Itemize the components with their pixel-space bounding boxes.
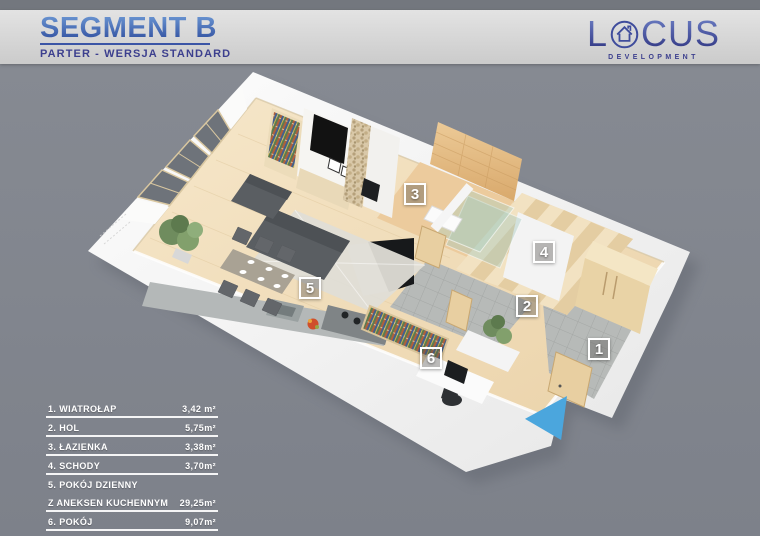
logo-subtext: DEVELOPMENT [587, 54, 720, 61]
room-marker-5: 5 [299, 277, 321, 299]
legend-row: 5. POKÓJ DZIENNY [46, 480, 218, 494]
room-marker-1: 1 [588, 338, 610, 360]
legend-row: Z ANEKSEN KUCHENNYM29,25m² [46, 498, 218, 512]
legend-row: 2. HOL5,75m² [46, 423, 218, 437]
legend-area-value: 29,25m² [180, 498, 216, 508]
legend-room-label: 2. HOL [48, 423, 79, 433]
room-marker-2: 2 [516, 295, 538, 317]
title-block: SEGMENT B PARTER - WERSJA STANDARD [40, 13, 231, 60]
logo-wordmark: L CUS [587, 16, 720, 52]
logo-letter-l: L [587, 16, 608, 52]
house-in-circle-icon [609, 19, 640, 50]
logo-letters-cus: CUS [641, 16, 720, 52]
room-marker-4: 4 [533, 241, 555, 263]
legend-room-label: 4. SCHODY [48, 461, 100, 471]
page-subtitle: PARTER - WERSJA STANDARD [40, 48, 231, 60]
legend-row: 4. SCHODY3,70m² [46, 461, 218, 475]
legend-row: 1. WIATROŁAP3,42 m² [46, 404, 218, 418]
legend-room-label: 5. POKÓJ DZIENNY [48, 480, 138, 490]
legend-room-label: 6. POKÓJ [48, 517, 93, 527]
room-marker-3: 3 [404, 183, 426, 205]
legend-row: 6. POKÓJ9,07m² [46, 517, 218, 531]
legend-room-label: Z ANEKSEN KUCHENNYM [48, 498, 168, 508]
legend-room-label: 1. WIATROŁAP [48, 404, 117, 414]
door-handle [559, 385, 562, 388]
room-marker-6: 6 [420, 347, 442, 369]
legend-area-value: 3,38m² [185, 442, 216, 452]
legend-rows: 1. WIATROŁAP3,42 m²2. HOL5,75m²3. ŁAZIEN… [46, 404, 216, 536]
legend-area-value: 3,42 m² [182, 404, 216, 414]
legend-area-value: 5,75m² [185, 423, 216, 433]
brochure-page: SEGMENT B PARTER - WERSJA STANDARD L CUS… [0, 0, 760, 536]
company-logo: L CUS DEVELOPMENT [587, 16, 720, 61]
legend-room-label: 3. ŁAZIENKA [48, 442, 108, 452]
area-legend: 1. WIATROŁAP3,42 m²2. HOL5,75m²3. ŁAZIEN… [46, 404, 216, 536]
header-banner: SEGMENT B PARTER - WERSJA STANDARD L CUS… [0, 10, 760, 64]
legend-area-value: 3,70m² [185, 461, 216, 471]
legend-row: 3. ŁAZIENKA3,38m² [46, 442, 218, 456]
legend-area-value: 9,07m² [185, 517, 216, 527]
page-title: SEGMENT B [40, 13, 231, 43]
